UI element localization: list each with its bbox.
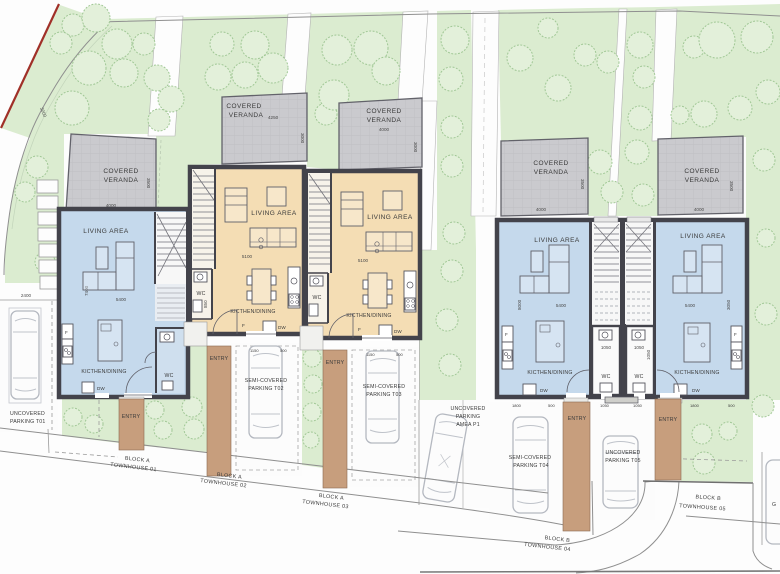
svg-text:500: 500	[280, 348, 287, 353]
svg-text:1050: 1050	[601, 345, 612, 350]
svg-text:1800: 1800	[512, 403, 522, 408]
svg-text:VERANDA: VERANDA	[685, 177, 720, 184]
svg-text:KICTHEN/DINING: KICTHEN/DINING	[674, 370, 719, 376]
svg-text:500: 500	[728, 403, 735, 408]
svg-text:3500: 3500	[146, 178, 151, 189]
svg-text:VERANDA: VERANDA	[367, 117, 402, 124]
svg-text:DW: DW	[394, 329, 402, 334]
svg-text:3050: 3050	[726, 299, 731, 310]
svg-text:5400: 5400	[556, 303, 567, 308]
svg-text:ENTRY: ENTRY	[659, 417, 678, 423]
svg-text:ENTRY: ENTRY	[568, 416, 587, 422]
svg-text:4000: 4000	[379, 127, 390, 132]
svg-text:UNCOVERED: UNCOVERED	[606, 450, 641, 456]
svg-text:PARKING T04: PARKING T04	[513, 463, 548, 469]
svg-text:3000: 3000	[413, 142, 418, 153]
svg-text:SEMI-COVERED: SEMI-COVERED	[363, 384, 406, 390]
svg-text:5400: 5400	[116, 297, 127, 302]
svg-text:SEMI-COVERED: SEMI-COVERED	[509, 455, 552, 461]
svg-text:5100: 5100	[242, 254, 253, 259]
svg-text:LIVING AREA: LIVING AREA	[251, 210, 297, 217]
svg-text:UNCOVERED: UNCOVERED	[451, 406, 486, 412]
svg-text:F: F	[734, 332, 737, 337]
svg-text:WC: WC	[312, 295, 321, 301]
svg-text:500: 500	[548, 403, 555, 408]
svg-text:2400: 2400	[21, 293, 32, 298]
svg-text:AMEA P1: AMEA P1	[456, 422, 480, 428]
svg-text:1150: 1150	[366, 352, 375, 357]
svg-text:COVERED: COVERED	[103, 168, 138, 175]
svg-text:COVERED: COVERED	[684, 168, 719, 175]
svg-text:WC: WC	[634, 374, 643, 380]
svg-text:G: G	[772, 502, 776, 508]
svg-text:VERANDA: VERANDA	[534, 169, 569, 176]
svg-text:4000: 4000	[536, 207, 547, 212]
svg-text:ENTRY: ENTRY	[210, 356, 229, 362]
svg-text:3500: 3500	[729, 181, 734, 192]
svg-text:WC: WC	[601, 374, 610, 380]
svg-text:VERANDA: VERANDA	[229, 112, 264, 119]
svg-text:F: F	[358, 327, 361, 333]
svg-text:LIVING AREA: LIVING AREA	[534, 237, 580, 244]
svg-text:PARKING T05: PARKING T05	[605, 458, 640, 464]
svg-text:COVERED: COVERED	[533, 160, 568, 167]
svg-text:SEMI-COVERED: SEMI-COVERED	[245, 378, 288, 384]
svg-text:ENTRY: ENTRY	[326, 360, 345, 366]
svg-text:1050: 1050	[600, 403, 610, 408]
svg-text:8000: 8000	[517, 299, 522, 310]
svg-text:DW: DW	[97, 386, 105, 391]
svg-text:PARKING: PARKING	[456, 414, 480, 420]
svg-text:ENTRY: ENTRY	[122, 414, 141, 420]
svg-text:1050: 1050	[633, 403, 643, 408]
svg-text:VERANDA: VERANDA	[104, 177, 139, 184]
svg-text:LIVING AREA: LIVING AREA	[680, 233, 726, 240]
svg-text:WC: WC	[164, 373, 173, 379]
svg-text:UNCOVERED: UNCOVERED	[10, 411, 45, 417]
svg-text:PARKING T01: PARKING T01	[10, 419, 45, 425]
svg-text:1150: 1150	[250, 348, 259, 353]
svg-text:DW: DW	[692, 388, 700, 393]
svg-text:WC: WC	[196, 291, 205, 297]
svg-text:4000: 4000	[694, 207, 705, 212]
svg-text:1800: 1800	[690, 403, 700, 408]
svg-text:1050: 1050	[634, 345, 645, 350]
svg-text:5100: 5100	[358, 258, 369, 263]
svg-text:COVERED: COVERED	[366, 108, 401, 115]
svg-text:LIVING AREA: LIVING AREA	[367, 214, 413, 221]
svg-text:PARKING T03: PARKING T03	[366, 392, 401, 398]
svg-text:COVERED: COVERED	[226, 103, 261, 110]
svg-text:F: F	[505, 332, 508, 337]
svg-text:1050: 1050	[646, 349, 651, 360]
svg-text:3500: 3500	[580, 179, 585, 190]
svg-text:500: 500	[396, 352, 403, 357]
svg-text:DW: DW	[278, 325, 286, 330]
svg-text:3000: 3000	[300, 133, 305, 144]
svg-text:KICTHEN/DINING: KICTHEN/DINING	[527, 370, 572, 376]
svg-text:850: 850	[203, 300, 208, 308]
svg-text:5400: 5400	[685, 303, 696, 308]
svg-text:DW: DW	[540, 388, 548, 393]
svg-text:PARKING T02: PARKING T02	[248, 386, 283, 392]
svg-text:LIVING AREA: LIVING AREA	[83, 228, 129, 235]
svg-text:F: F	[65, 330, 68, 335]
svg-text:4250: 4250	[268, 115, 279, 120]
svg-text:F: F	[242, 323, 245, 329]
svg-text:KICTHEN/DINING: KICTHEN/DINING	[81, 369, 126, 375]
